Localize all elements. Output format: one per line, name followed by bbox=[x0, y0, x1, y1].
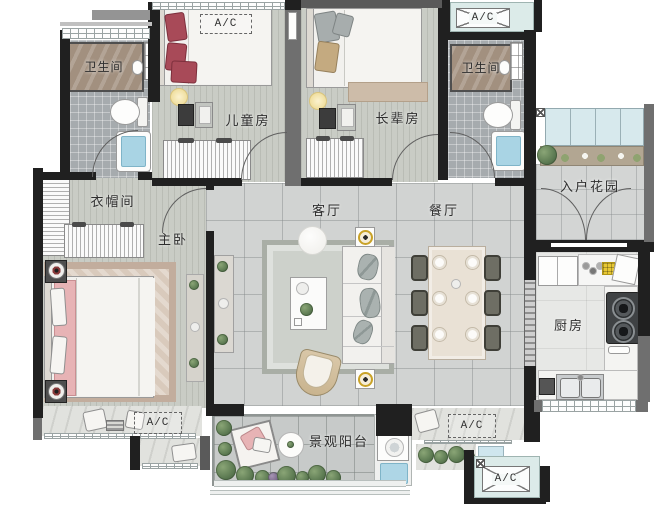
wall bbox=[495, 178, 526, 186]
wall bbox=[474, 498, 546, 504]
kids-nightstand bbox=[178, 104, 194, 126]
ext-balcony-window bbox=[142, 463, 198, 469]
exterior-ledge bbox=[92, 10, 150, 20]
sink-basin bbox=[581, 378, 601, 398]
ac-zone-master-balcony: A/C bbox=[134, 412, 182, 434]
wall bbox=[376, 404, 412, 436]
downlight-icon bbox=[355, 369, 375, 389]
balcony-window-rim bbox=[214, 480, 406, 487]
plate bbox=[465, 291, 480, 306]
plate bbox=[465, 327, 480, 342]
dining-chair bbox=[411, 325, 428, 351]
room-label-garden: 入户花园 bbox=[550, 180, 630, 193]
drain-icon bbox=[536, 108, 545, 117]
sofa-cushion-line bbox=[343, 346, 394, 347]
bench-decor bbox=[190, 322, 200, 332]
kitchen-window bbox=[542, 400, 636, 412]
bathtub-water bbox=[496, 136, 521, 166]
master-pillow bbox=[50, 288, 68, 327]
bench-plant bbox=[189, 358, 199, 368]
planter-plant bbox=[434, 450, 448, 464]
wardrobe-handle bbox=[216, 138, 232, 143]
room-label-cloakroom: 衣帽间 bbox=[74, 195, 152, 208]
fridge bbox=[538, 256, 578, 286]
plate bbox=[432, 291, 447, 306]
wall bbox=[638, 336, 650, 402]
ac-zone-walkway: A/C bbox=[448, 414, 496, 438]
planter-plant bbox=[418, 447, 434, 463]
elders-bed-headboard bbox=[306, 8, 314, 88]
master-bed-fold bbox=[138, 278, 140, 396]
wall bbox=[33, 168, 43, 418]
kids-wardrobe bbox=[163, 140, 251, 180]
wall bbox=[200, 436, 210, 470]
wardrobe-handle bbox=[120, 222, 134, 227]
toilet-icon bbox=[110, 99, 140, 125]
floor-lamp-icon bbox=[298, 226, 327, 255]
ac-label: A/C bbox=[147, 418, 170, 429]
sink-basin bbox=[560, 378, 580, 398]
ac-label: A/C bbox=[492, 474, 521, 485]
wall bbox=[638, 244, 650, 336]
room-label-balcony: 景观阳台 bbox=[302, 435, 376, 448]
kitchen-sliding-door bbox=[524, 280, 536, 366]
cabinet-decor bbox=[218, 298, 229, 309]
balcony-plant bbox=[216, 460, 236, 480]
stove-burner-icon bbox=[612, 320, 635, 343]
cabinet-plant bbox=[217, 261, 228, 272]
book-stack bbox=[106, 420, 124, 431]
wardrobe-handle bbox=[72, 222, 86, 227]
wall bbox=[534, 400, 542, 412]
wall bbox=[138, 172, 152, 180]
room-label-elders: 长辈房 bbox=[356, 112, 440, 125]
garden-plant bbox=[537, 145, 557, 165]
wall bbox=[152, 178, 242, 186]
master-bed-duvet bbox=[76, 278, 155, 396]
wall bbox=[442, 0, 450, 34]
elders-desk-chair bbox=[341, 108, 354, 127]
coffee-table-plant bbox=[300, 303, 313, 316]
wall bbox=[540, 466, 550, 502]
ac-unit-box: A/C bbox=[456, 8, 510, 28]
balcony-plant bbox=[216, 420, 232, 436]
wall bbox=[285, 0, 301, 10]
room-label-kids: 儿童房 bbox=[206, 114, 290, 127]
dining-chair bbox=[411, 255, 428, 281]
kids-pillow bbox=[164, 12, 188, 43]
table-plant bbox=[287, 441, 294, 448]
wall bbox=[33, 418, 42, 440]
stove-burner-icon bbox=[612, 297, 635, 320]
elders-wardrobe bbox=[306, 138, 364, 178]
window-sill bbox=[60, 22, 152, 26]
wardrobe-handle bbox=[340, 136, 354, 141]
speaker-icon bbox=[48, 262, 65, 279]
wall bbox=[534, 0, 542, 32]
ac-label: A/C bbox=[469, 13, 498, 24]
wardrobe-handle bbox=[316, 136, 330, 141]
elders-nightstand bbox=[319, 108, 336, 129]
side-window bbox=[424, 440, 512, 444]
balcony-pillow bbox=[252, 437, 272, 454]
kids-window bbox=[152, 2, 285, 10]
wall bbox=[206, 404, 244, 416]
elders-pillow bbox=[314, 41, 340, 74]
wall bbox=[42, 172, 96, 180]
wall bbox=[206, 231, 214, 406]
room-label-bathroom-right: 卫生间 bbox=[448, 62, 514, 74]
plate bbox=[432, 255, 447, 270]
washbasin bbox=[510, 42, 523, 80]
toilet-icon bbox=[483, 102, 513, 128]
stove-control-panel bbox=[608, 346, 630, 354]
room-label-living: 客厅 bbox=[298, 204, 356, 217]
table-centerpiece bbox=[451, 279, 461, 289]
ac-label: A/C bbox=[461, 421, 484, 432]
dining-chair bbox=[484, 290, 501, 316]
sofa-cushion-line bbox=[343, 283, 381, 284]
garden-window bbox=[545, 108, 644, 146]
coffee-table-tray bbox=[296, 282, 309, 295]
wall bbox=[644, 104, 654, 242]
dining-chair bbox=[484, 255, 501, 281]
room-label-dining: 餐厅 bbox=[414, 204, 474, 217]
ac-zone-kids: A/C bbox=[200, 14, 252, 34]
floor-plan: A/C A/C A/C A/C A/C bbox=[0, 0, 655, 508]
dining-chair bbox=[411, 290, 428, 316]
wall bbox=[524, 252, 536, 280]
balcony-outer-rim bbox=[210, 490, 410, 495]
fridge-divider bbox=[557, 257, 558, 285]
wardrobe-handle bbox=[178, 138, 194, 143]
wall bbox=[448, 32, 536, 40]
balcony-pillow bbox=[171, 442, 197, 462]
bathroom-window bbox=[62, 28, 150, 39]
cloakroom-wardrobe-bottom bbox=[64, 224, 144, 258]
wall bbox=[636, 400, 648, 412]
drain-icon bbox=[476, 459, 485, 468]
dining-chair bbox=[484, 325, 501, 351]
wall bbox=[60, 30, 70, 180]
elders-rug bbox=[348, 82, 428, 102]
bench-plant bbox=[189, 280, 199, 290]
room-label-kitchen: 厨房 bbox=[546, 319, 592, 332]
cabinet-plant bbox=[217, 334, 228, 345]
balcony-plant bbox=[218, 442, 232, 456]
faucet-icon bbox=[577, 374, 584, 381]
wall bbox=[206, 183, 214, 190]
entry-door-line bbox=[551, 243, 627, 247]
elders-bed-duvet bbox=[344, 10, 421, 86]
wall bbox=[301, 0, 448, 8]
plate bbox=[432, 327, 447, 342]
plate bbox=[465, 255, 480, 270]
door-leaf bbox=[288, 12, 297, 40]
room-label-master: 主卧 bbox=[150, 233, 196, 246]
coffee-table-decor bbox=[294, 318, 302, 326]
washer-door-icon bbox=[385, 438, 404, 457]
speaker-icon bbox=[48, 383, 65, 400]
wall bbox=[130, 436, 140, 470]
wall-appliance bbox=[539, 378, 555, 395]
ac-unit-box: A/C bbox=[482, 466, 530, 492]
wall bbox=[301, 178, 392, 186]
wall bbox=[524, 30, 536, 242]
downlight-icon bbox=[355, 227, 375, 247]
room-label-bathroom-left: 卫生间 bbox=[62, 61, 146, 73]
wall bbox=[464, 450, 474, 504]
kids-throw-blanket bbox=[170, 60, 197, 83]
ac-label: A/C bbox=[215, 19, 238, 30]
